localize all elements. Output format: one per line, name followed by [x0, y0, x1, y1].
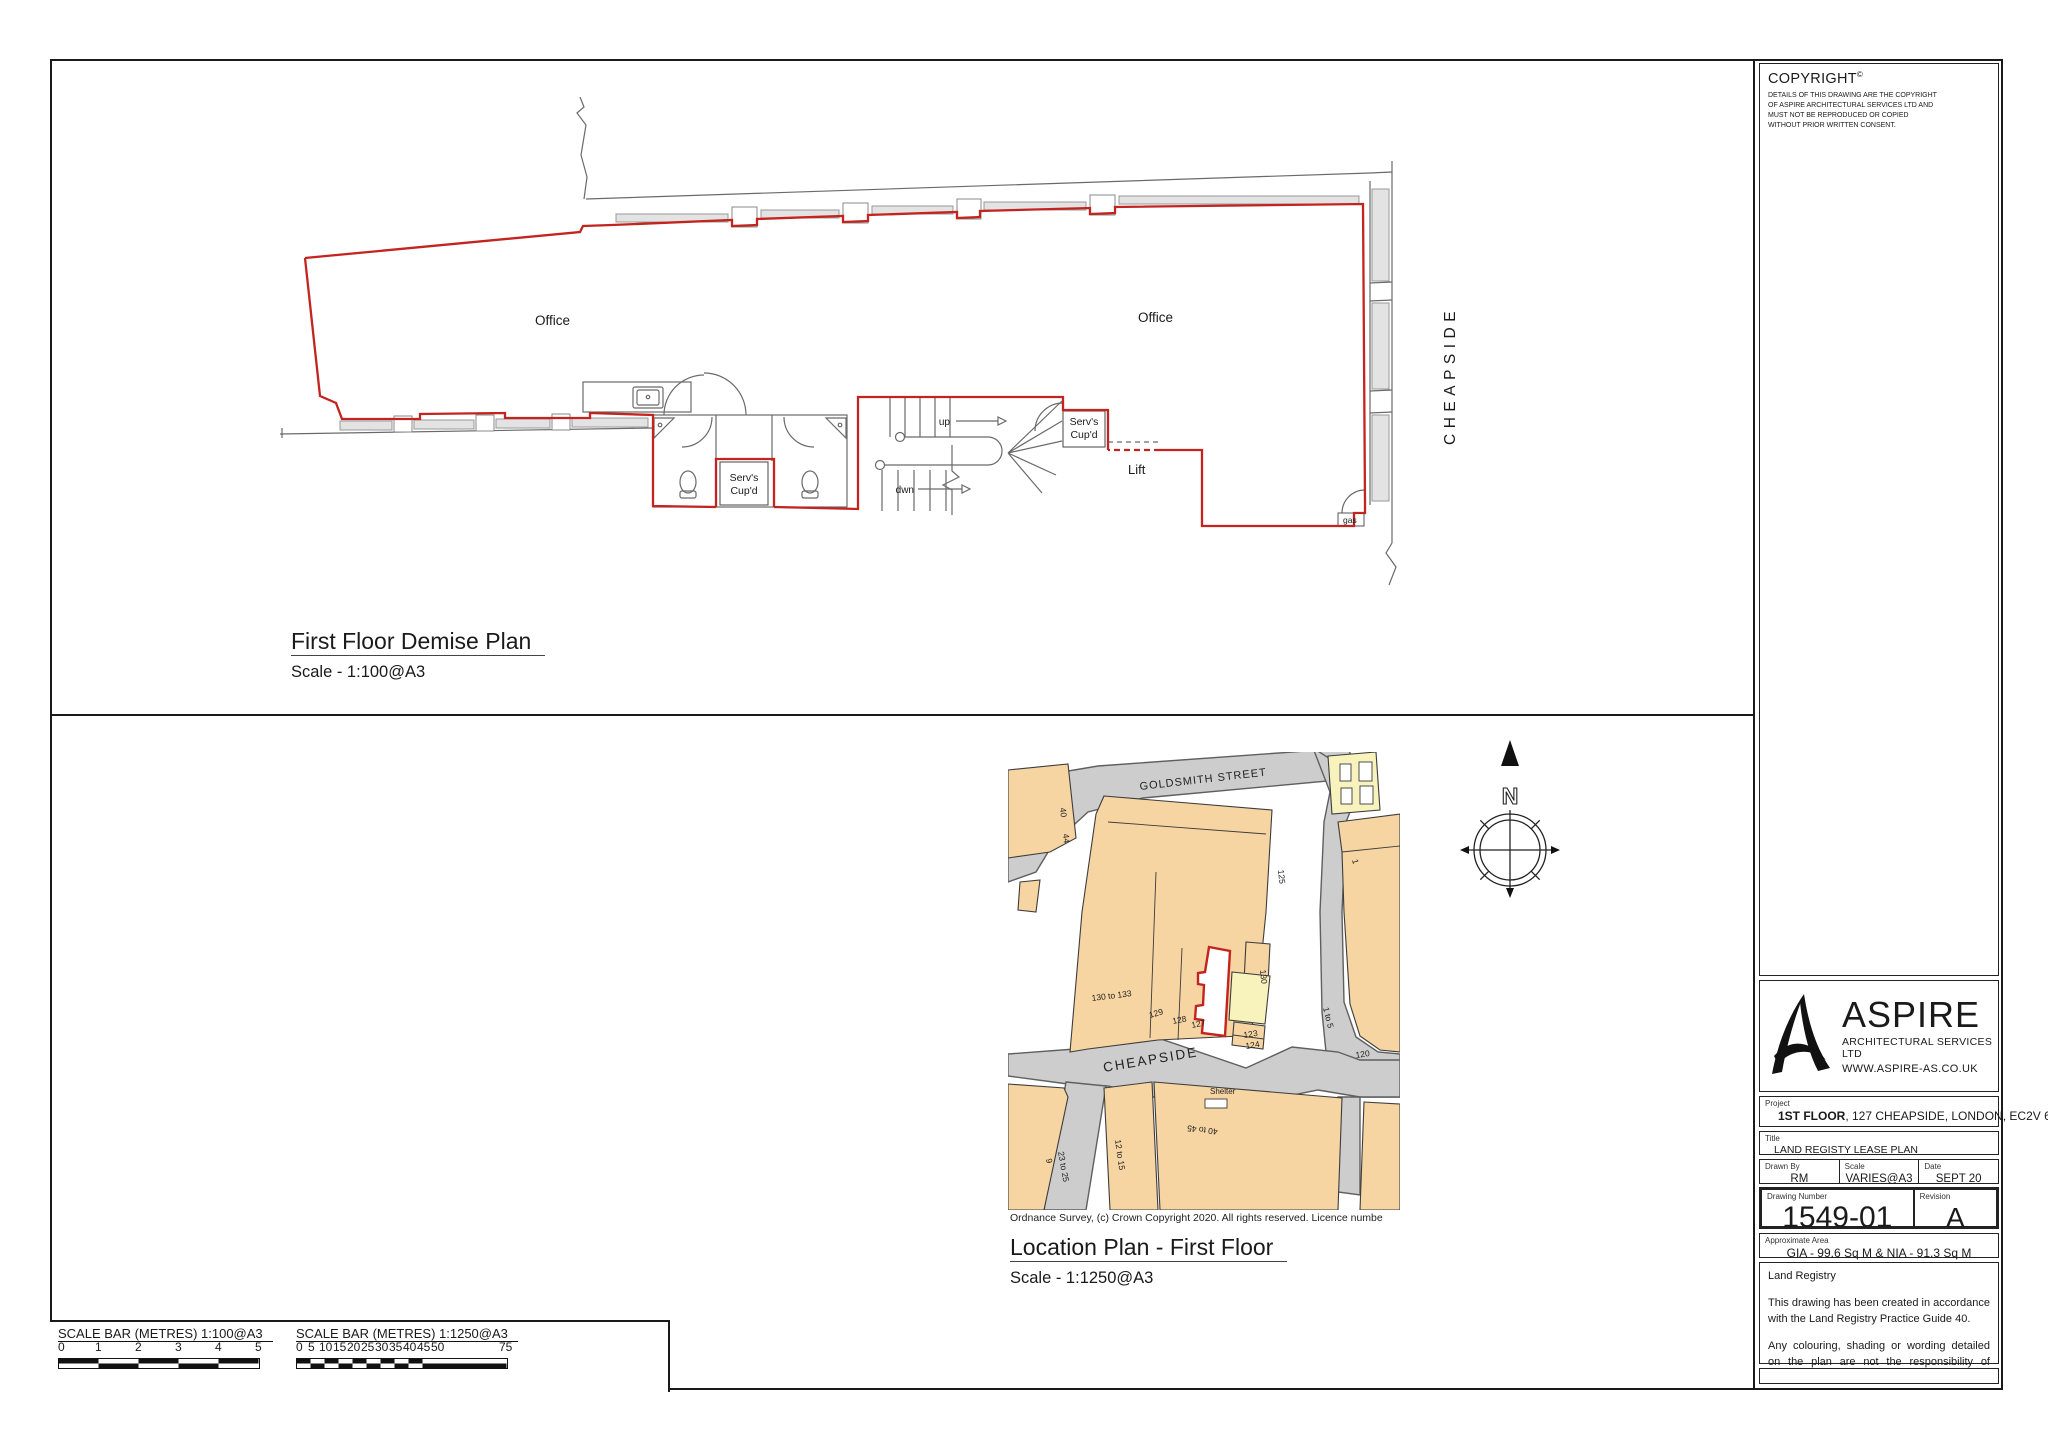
scale-bar-1-title: SCALE BAR (METRES) 1:100@A3	[58, 1326, 273, 1342]
sb1-tick: 0	[58, 1340, 65, 1354]
staircase	[876, 398, 1063, 515]
demise-boundary	[305, 204, 1365, 526]
door-arc	[682, 417, 712, 447]
cheapside-street-label: CHEAPSIDE	[1442, 306, 1459, 445]
demise-plan-title: First Floor Demise Plan	[291, 628, 545, 656]
revision-value: A	[1915, 1202, 1996, 1234]
location-plan-heading-group: Location Plan - First Floor Scale - 1:12…	[1010, 1234, 1287, 1288]
map-label-44: 44	[1061, 833, 1072, 844]
approx-area-value: GIA - 99.6 Sq M & NIA - 91.3 Sq M	[1760, 1246, 1998, 1260]
drawn-scale-date-row: Drawn By RM Scale VARIES@A3 Date SEPT 20	[1759, 1159, 1999, 1184]
map-credit: Ordnance Survey, (c) Crown Copyright 202…	[1010, 1212, 1400, 1224]
scale-bar-2-group: SCALE BAR (METRES) 1:1250@A3 0 5 10 15 2…	[296, 1325, 556, 1343]
map-label-40: 40	[1058, 807, 1069, 818]
sb1-tick: 2	[135, 1340, 142, 1354]
scale-label: Scale	[1840, 1160, 1919, 1171]
project-label: Project	[1760, 1097, 1998, 1108]
date-value: SEPT 20	[1919, 1173, 1998, 1185]
map-label-shelter: Shelter	[1210, 1087, 1236, 1096]
approx-area-label: Approximate Area	[1760, 1234, 1998, 1245]
sb2-tick: 30	[375, 1340, 388, 1354]
approx-area-box: Approximate Area GIA - 99.6 Sq M & NIA -…	[1759, 1233, 1999, 1258]
sb2-tick: 20	[347, 1340, 360, 1354]
scale-value: VARIES@A3	[1840, 1173, 1919, 1185]
demise-plan-scale: Scale - 1:100@A3	[291, 663, 545, 682]
demise-plan-heading-group: First Floor Demise Plan Scale - 1:100@A3	[291, 628, 545, 682]
sb2-tick: 40	[403, 1340, 416, 1354]
notes-para1: This drawing has been created in accorda…	[1768, 1296, 1990, 1327]
map-label-130: 130	[1258, 969, 1269, 984]
north-letter: N	[1502, 783, 1519, 809]
demise-plan-drawing: Office Office Serv'sCup'd Serv'sCup'd Li…	[250, 85, 1480, 600]
wc-fixture	[802, 471, 818, 493]
copyright-box: COPYRIGHT© DETAILS OF THIS DRAWING ARE T…	[1759, 63, 1999, 976]
notes-box: Land Registry This drawing has been crea…	[1759, 1262, 1999, 1364]
logo-name: ASPIRE	[1842, 997, 1998, 1033]
location-plan-map: GOLDSMITH STREET CHEAPSIDE 40 44 125 1 1…	[1008, 752, 1400, 1210]
sb2-tick: 35	[389, 1340, 402, 1354]
map-label-120: 120	[1355, 1048, 1371, 1060]
scale-bar-1-group: SCALE BAR (METRES) 1:100@A3 0 1 2 3 4 5	[58, 1325, 288, 1343]
scale-bar-panel: SCALE BAR (METRES) 1:100@A3 0 1 2 3 4 5 …	[50, 1320, 670, 1392]
servs-cupboard-left-label: Serv'sCup'd	[730, 472, 759, 497]
bottom-strip-box	[1759, 1368, 1999, 1384]
location-plan-title: Location Plan - First Floor	[1010, 1234, 1287, 1262]
project-value: 1ST FLOOR, 127 CHEAPSIDE, LONDON, EC2V 6…	[1760, 1108, 1998, 1123]
sb2-tick: 0	[296, 1340, 303, 1354]
title-box: Title LAND REGISTY LEASE PLAN	[1759, 1131, 1999, 1155]
door-arc	[1035, 403, 1063, 431]
sb2-tick: 10	[319, 1340, 332, 1354]
wall-break-line	[1386, 543, 1396, 585]
title-column-divider	[1753, 59, 1755, 1390]
sb2-tick: 75	[499, 1340, 512, 1354]
drawn-by-value: RM	[1760, 1173, 1839, 1185]
copyright-body: DETAILS OF THIS DRAWING ARE THE COPYRIGH…	[1768, 91, 1938, 132]
project-box: Project 1ST FLOOR, 127 CHEAPSIDE, LONDON…	[1759, 1096, 1999, 1127]
location-plan-scale: Scale - 1:1250@A3	[1010, 1269, 1287, 1288]
date-cell: Date SEPT 20	[1919, 1160, 1998, 1183]
logo-subtitle: ARCHITECTURAL SERVICES LTD	[1842, 1036, 1998, 1060]
date-label: Date	[1919, 1160, 1998, 1171]
party-wall-line	[577, 97, 587, 199]
title-value: LAND REGISTY LEASE PLAN	[1760, 1143, 1998, 1156]
drawing-number-row: Drawing Number 1549-01 Revision A	[1759, 1187, 1999, 1229]
door-arc	[784, 417, 814, 447]
revision-cell: Revision A	[1915, 1190, 1996, 1226]
lift-label: Lift	[1128, 462, 1146, 477]
plan-divider	[50, 714, 1753, 716]
basin	[654, 418, 674, 438]
sb2-tick: 50	[431, 1340, 444, 1354]
door-arc	[1342, 490, 1365, 513]
sb2-tick: 25	[361, 1340, 374, 1354]
scale-bar-2	[296, 1358, 508, 1369]
scale-cell: Scale VARIES@A3	[1840, 1160, 1920, 1183]
notes-heading: Land Registry	[1768, 1269, 1990, 1284]
sb1-tick: 3	[175, 1340, 182, 1354]
wc-fixture	[680, 471, 696, 493]
scale-bar-1	[58, 1358, 260, 1369]
north-compass: N	[1448, 732, 1578, 902]
drawing-number-cell: Drawing Number 1549-01	[1762, 1190, 1915, 1226]
title-label: Title	[1760, 1132, 1998, 1143]
sb1-tick: 1	[95, 1340, 102, 1354]
north-arrow-icon	[1501, 740, 1519, 766]
sb2-tick: 45	[417, 1340, 430, 1354]
office-right-label: Office	[1138, 310, 1173, 325]
aspire-logo-icon	[1770, 994, 1834, 1080]
drawing-number-value: 1549-01	[1762, 1201, 1913, 1235]
drawn-by-label: Drawn By	[1760, 1160, 1839, 1171]
office-left-label: Office	[535, 313, 570, 328]
sb1-tick: 5	[255, 1340, 262, 1354]
sb1-tick: 4	[215, 1340, 222, 1354]
copyright-title: COPYRIGHT©	[1760, 64, 1998, 89]
servs-cupboard-right-label: Serv'sCup'd	[1070, 416, 1099, 441]
shelter-outline	[1205, 1099, 1227, 1108]
gas-label: gas	[1343, 515, 1357, 525]
basin	[826, 418, 846, 438]
stair-up-label: up	[939, 417, 951, 428]
windows	[340, 189, 1389, 501]
sb2-tick: 15	[333, 1340, 346, 1354]
drawn-by-cell: Drawn By RM	[1760, 1160, 1840, 1183]
logo-text: ASPIRE ARCHITECTURAL SERVICES LTD WWW.AS…	[1842, 997, 1998, 1075]
logo-box: ASPIRE ARCHITECTURAL SERVICES LTD WWW.AS…	[1759, 980, 1999, 1092]
logo-website: WWW.ASPIRE-AS.CO.UK	[1842, 1063, 1998, 1075]
stair-dwn-label: dwn	[896, 485, 914, 496]
sb2-tick: 5	[308, 1340, 315, 1354]
door-arc	[664, 375, 704, 415]
drawing-number-label: Drawing Number	[1762, 1190, 1913, 1201]
revision-label: Revision	[1915, 1190, 1996, 1201]
building-outline	[280, 97, 1396, 585]
map-label-125: 125	[1276, 869, 1287, 884]
door-arc	[704, 373, 746, 415]
